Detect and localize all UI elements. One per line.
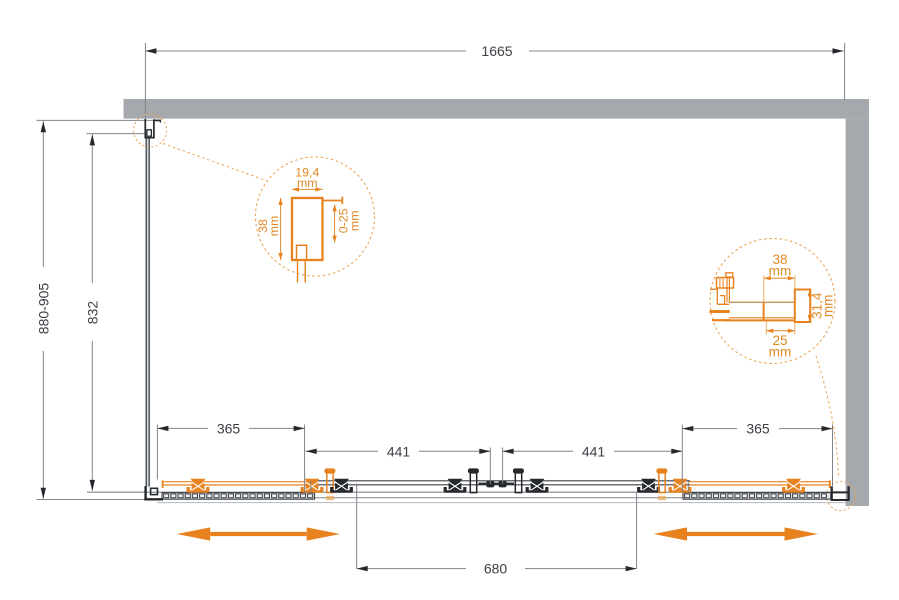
svg-text:mm: mm <box>769 345 792 360</box>
svg-text:365: 365 <box>217 420 241 436</box>
svg-text:441: 441 <box>387 443 411 459</box>
svg-text:mm: mm <box>769 264 792 279</box>
svg-text:mm: mm <box>821 294 836 317</box>
svg-text:mm: mm <box>297 176 318 190</box>
svg-text:365: 365 <box>746 421 770 437</box>
svg-text:880-905: 880-905 <box>35 283 51 335</box>
svg-text:mm: mm <box>347 210 361 231</box>
svg-text:mm: mm <box>267 216 281 237</box>
svg-text:441: 441 <box>582 443 606 459</box>
svg-text:1665: 1665 <box>481 43 512 59</box>
svg-text:832: 832 <box>84 301 100 325</box>
svg-text:680: 680 <box>484 561 508 577</box>
